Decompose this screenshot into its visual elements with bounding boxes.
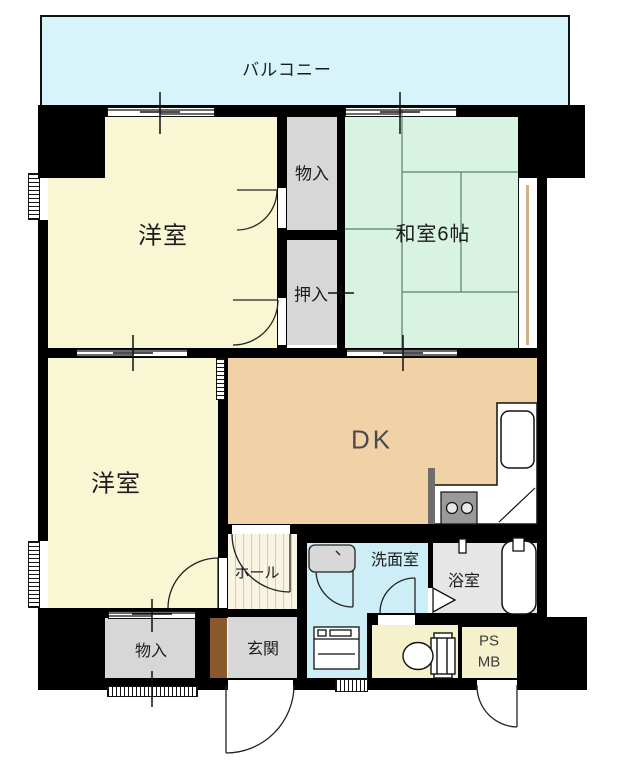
window-pane-lines [77, 110, 457, 616]
bathroom-label: 浴室 [448, 567, 480, 591]
door-arc-entrance [226, 685, 294, 753]
bath-folding-door-icon [433, 588, 455, 612]
balcony-label: バルコニー [242, 56, 332, 81]
storage-lower-label: 物入 [135, 637, 167, 661]
kitchen-counter [428, 403, 537, 524]
door-arc-ps [477, 685, 517, 727]
counter-end-panel [428, 468, 435, 524]
washing-machine-icon [314, 627, 359, 669]
dimension-ticks [113, 92, 423, 707]
door-arc-western-lower [168, 558, 218, 608]
floor-plan: バルコニー 洋室 和室6帖 物入 押入 洋室 DK ホール 洗面室 浴室 玄関 … [0, 0, 619, 768]
mb-label: MB [478, 654, 501, 671]
door-arc-closet [233, 300, 278, 345]
western-upper-label: 洋室 [138, 216, 188, 251]
japanese-room-label: 和室6帖 [395, 218, 470, 247]
bath-tap-icon [513, 538, 524, 551]
closet-label: 押入 [294, 281, 328, 306]
toilet-icon [403, 633, 455, 678]
entrance-label: 玄関 [247, 635, 279, 659]
door-arc-storage-upper [237, 190, 277, 230]
bathtub-icon [502, 541, 536, 614]
dk-label: DK [351, 425, 393, 456]
plan-linework [0, 0, 619, 768]
shower-icon [459, 539, 466, 553]
door-arc-toilet [380, 578, 415, 613]
storage-upper-label: 物入 [295, 160, 329, 185]
washroom-label: 洗面室 [371, 546, 419, 570]
western-lower-label: 洋室 [91, 464, 141, 499]
ps-label: PS [479, 633, 499, 650]
stove-burners-icon [441, 492, 477, 524]
kitchen-sink-icon [501, 411, 534, 468]
hall-label: ホール [234, 562, 279, 583]
washbasin-icon [309, 545, 355, 572]
door-arc-washroom [316, 570, 353, 607]
